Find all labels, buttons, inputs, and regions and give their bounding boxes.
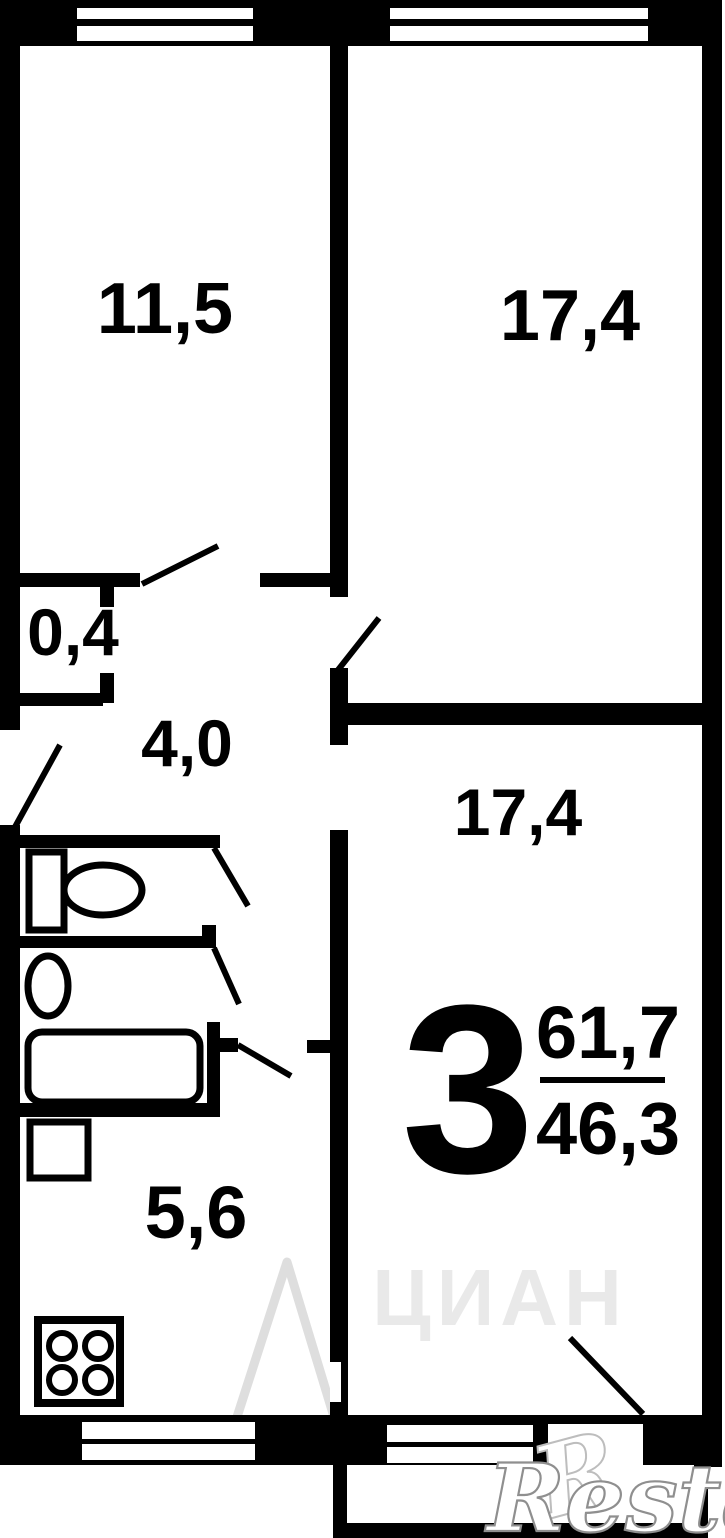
sink-icon [28, 956, 68, 1016]
cian-watermark: ЦИАН [237, 1253, 628, 1417]
area-label-room-bottom-right: 17,4 [454, 775, 583, 849]
rooms-count: 3 [401, 955, 534, 1223]
wall-divider-jamb [202, 925, 216, 948]
wall-central-lower [330, 830, 348, 1415]
door-swing-bathroom [214, 948, 239, 1004]
wall-room-tl-bottom-right [260, 573, 330, 587]
restate-watermark-text: Restate [484, 1444, 725, 1538]
wall-balcony-left [333, 1465, 347, 1538]
area-label-closet: 0,4 [27, 595, 119, 669]
wall-right [702, 46, 722, 1467]
toilet-tank-icon [29, 852, 64, 930]
window-top-left-pane1 [77, 8, 253, 19]
cian-watermark-text: ЦИАН [372, 1253, 627, 1342]
door-swing-kitchen [238, 1045, 291, 1076]
wall-toilet-top [18, 835, 220, 848]
wall-left-upper [0, 46, 20, 730]
wall-left-lower [0, 825, 20, 1465]
window-top-left-pane2 [77, 26, 253, 41]
fridge-icon [30, 1122, 88, 1178]
wall-toilet-bath-divider [18, 936, 216, 948]
wall-kitchen-jamb-right [307, 1040, 348, 1053]
floor-plan-canvas: ЦИАН [0, 0, 725, 1538]
wall-central-slot [330, 1362, 341, 1402]
fixtures [28, 852, 200, 1403]
door-swing-balcony [570, 1338, 643, 1414]
door-swing-room-top-right [338, 618, 379, 670]
living-area: 46,3 [536, 1087, 680, 1170]
door-swing-entrance [15, 745, 60, 827]
window-kitchen-pane1 [82, 1422, 255, 1439]
window-bottom-right-pane1 [387, 1425, 533, 1442]
door-swing-room-top-left [142, 546, 218, 584]
bathtub-icon [28, 1032, 200, 1102]
stove-burner-icon [85, 1333, 111, 1359]
window-top-right-pane2 [390, 26, 648, 41]
area-label-room-top-left: 11,5 [97, 269, 233, 349]
wall-room-tl-bottom-left [20, 573, 140, 587]
wall-kitchen-jamb-left [220, 1038, 238, 1052]
toilet-bowl-icon [64, 865, 142, 915]
total-area: 61,7 [536, 991, 680, 1074]
area-fraction-line [540, 1077, 665, 1083]
window-kitchen-pane2 [82, 1444, 255, 1460]
wall-bath-right [207, 1022, 220, 1117]
window-top-right-pane1 [390, 8, 648, 19]
wall-closet-bottom [0, 693, 103, 706]
door-swing-toilet [214, 848, 248, 906]
stove-burner-icon [49, 1333, 75, 1359]
area-label-room-top-right: 17,4 [500, 276, 640, 356]
area-label-kitchen: 5,6 [145, 1171, 248, 1254]
wall-central-upper [330, 46, 348, 597]
wall-mid-horizontal [345, 703, 702, 725]
floor-plan: ЦИАН [0, 0, 725, 1538]
area-label-hallway: 4,0 [141, 706, 233, 780]
stove-burner-icon [49, 1367, 75, 1393]
stove-burner-icon [85, 1367, 111, 1393]
cian-peak-logo-icon [237, 1262, 334, 1417]
